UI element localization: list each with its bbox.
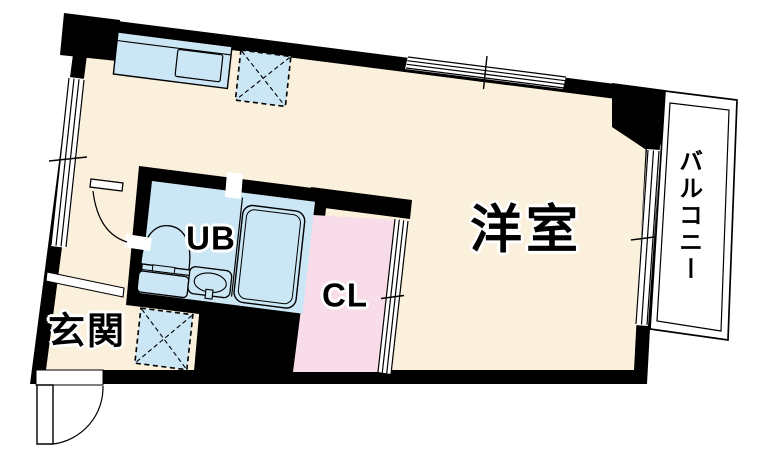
washer-space-outline bbox=[135, 308, 193, 370]
corner-pillar-topleft bbox=[60, 13, 120, 61]
entrance-door-arc bbox=[53, 386, 103, 444]
entrance-door-leaf bbox=[37, 385, 53, 444]
label-entrance: 玄関 bbox=[48, 313, 126, 352]
washbasin-tap bbox=[205, 289, 213, 299]
entrance-door-opening bbox=[36, 370, 103, 385]
entrance-door bbox=[36, 370, 103, 444]
refrigerator-space-box bbox=[235, 50, 291, 106]
kitchen-side-opening bbox=[225, 172, 243, 199]
label-unit-bath: UB bbox=[186, 222, 236, 257]
floorplan-drawing bbox=[0, 0, 766, 468]
label-main-room: 洋室 bbox=[470, 204, 582, 259]
label-closet: CL bbox=[322, 279, 368, 314]
floorplan-page: 洋室 UB CL 玄関 バルコニー bbox=[0, 0, 766, 468]
label-balcony: バルコニー bbox=[675, 149, 700, 284]
washer-space-box bbox=[135, 308, 193, 370]
